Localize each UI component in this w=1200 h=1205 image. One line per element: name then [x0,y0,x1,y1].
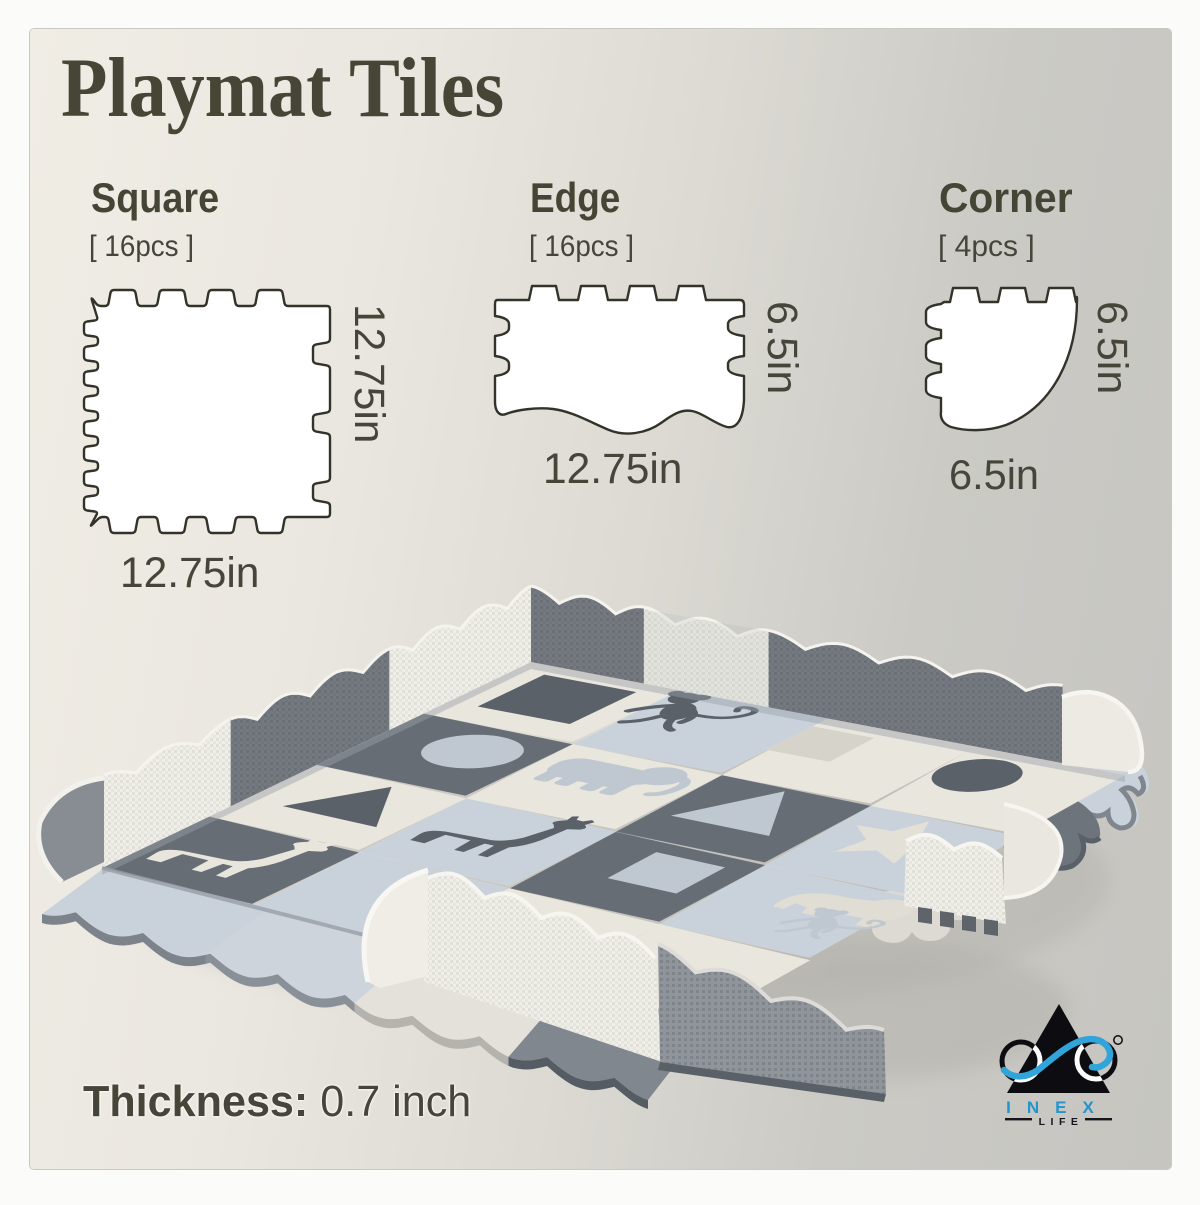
svg-text:INEX: INEX [1006,1098,1110,1117]
svg-text:LIFE: LIFE [1039,1116,1084,1128]
